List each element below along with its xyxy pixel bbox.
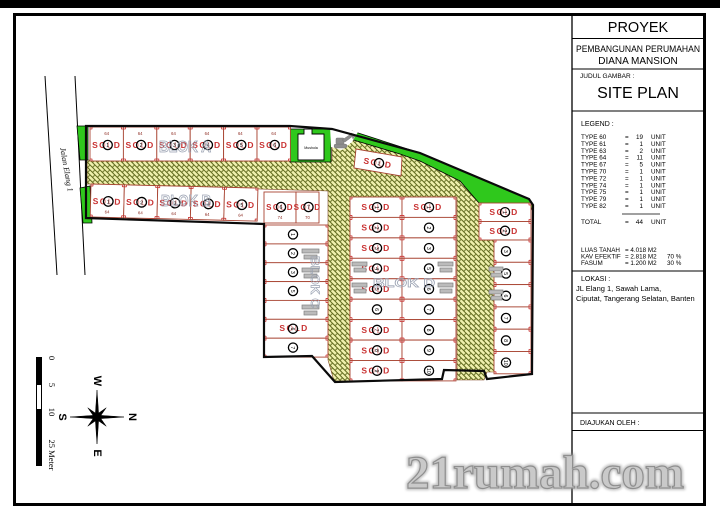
svg-text:BLOK C: BLOK C bbox=[308, 256, 322, 308]
svg-text:2: 2 bbox=[373, 226, 379, 229]
svg-text:= 1.200 M2: = 1.200 M2 bbox=[625, 260, 657, 267]
svg-text:LOKASI :: LOKASI : bbox=[581, 276, 610, 283]
svg-text:9: 9 bbox=[373, 369, 379, 372]
svg-text:5: 5 bbox=[240, 203, 243, 209]
svg-text:BLOK A: BLOK A bbox=[159, 139, 211, 156]
svg-text:=: = bbox=[625, 219, 629, 226]
svg-text:Ciputat, Tangerang Selatan, Ba: Ciputat, Tangerang Selatan, Banten bbox=[576, 294, 695, 303]
svg-text:10: 10 bbox=[502, 360, 508, 366]
svg-text:7: 7 bbox=[373, 329, 379, 332]
svg-text:PEMBANGUNAN PERUMAHAN: PEMBANGUNAN PERUMAHAN bbox=[576, 44, 700, 55]
svg-text:30 %: 30 % bbox=[667, 260, 682, 267]
svg-text:64: 64 bbox=[171, 131, 176, 136]
svg-text:1: 1 bbox=[639, 203, 643, 210]
svg-text:64: 64 bbox=[238, 213, 243, 218]
svg-text:3: 3 bbox=[502, 250, 508, 253]
svg-text:8: 8 bbox=[373, 349, 379, 352]
svg-text:1: 1 bbox=[373, 206, 379, 209]
svg-text:5: 5 bbox=[289, 290, 295, 293]
svg-text:TOTAL: TOTAL bbox=[581, 219, 602, 226]
svg-text:JL Elang 1, Sawah Lama,: JL Elang 1, Sawah Lama, bbox=[576, 284, 661, 293]
svg-text:UNIT: UNIT bbox=[651, 219, 666, 226]
svg-text:64: 64 bbox=[271, 131, 276, 136]
svg-text:5: 5 bbox=[425, 267, 431, 270]
svg-text:0: 0 bbox=[47, 356, 57, 360]
svg-text:21rumah.com: 21rumah.com bbox=[406, 447, 684, 499]
svg-text:6: 6 bbox=[273, 143, 276, 149]
svg-text:5: 5 bbox=[502, 272, 508, 275]
svg-text:PROYEK: PROYEK bbox=[608, 20, 669, 36]
svg-text:2: 2 bbox=[425, 226, 431, 229]
svg-text:6: 6 bbox=[502, 294, 508, 297]
svg-text:7: 7 bbox=[307, 205, 310, 211]
svg-text:64: 64 bbox=[205, 212, 210, 217]
svg-text:DIAJUKAN OLEH :: DIAJUKAN OLEH : bbox=[580, 420, 640, 427]
svg-text:6: 6 bbox=[289, 327, 295, 330]
svg-text:2: 2 bbox=[289, 252, 295, 255]
svg-text:3: 3 bbox=[425, 247, 431, 250]
svg-text:1: 1 bbox=[106, 143, 109, 149]
svg-text:7: 7 bbox=[289, 346, 295, 349]
svg-text:2: 2 bbox=[140, 200, 143, 206]
svg-text:=: = bbox=[625, 203, 629, 210]
svg-text:5: 5 bbox=[240, 143, 243, 149]
svg-text:3: 3 bbox=[289, 271, 295, 274]
svg-text:6: 6 bbox=[280, 205, 283, 211]
svg-text:64: 64 bbox=[171, 211, 176, 216]
svg-text:7: 7 bbox=[425, 308, 431, 311]
svg-text:5: 5 bbox=[47, 383, 57, 387]
svg-text:64: 64 bbox=[104, 131, 109, 136]
svg-text:Jalan Elang 1: Jalan Elang 1 bbox=[58, 147, 75, 193]
svg-text:64: 64 bbox=[238, 131, 243, 136]
svg-text:BLOK B: BLOK B bbox=[161, 193, 211, 210]
svg-text:44: 44 bbox=[636, 219, 644, 226]
svg-text:1: 1 bbox=[289, 233, 295, 236]
svg-text:1: 1 bbox=[501, 211, 507, 214]
svg-text:8: 8 bbox=[425, 329, 431, 332]
svg-text:8: 8 bbox=[502, 339, 508, 342]
svg-text:10: 10 bbox=[47, 408, 57, 417]
svg-text:UNIT: UNIT bbox=[651, 203, 666, 210]
svg-text:25 Meter: 25 Meter bbox=[47, 440, 57, 471]
svg-text:10: 10 bbox=[425, 368, 431, 374]
svg-text:N: N bbox=[126, 413, 138, 421]
svg-text:64: 64 bbox=[205, 131, 210, 136]
svg-text:2: 2 bbox=[140, 143, 143, 149]
svg-text:FASUM: FASUM bbox=[581, 260, 603, 267]
svg-text:JUDUL GAMBAR :: JUDUL GAMBAR : bbox=[580, 73, 634, 80]
svg-text:DIANA MANSION: DIANA MANSION bbox=[598, 56, 677, 67]
svg-text:1: 1 bbox=[107, 199, 110, 205]
svg-text:1: 1 bbox=[425, 206, 431, 209]
svg-text:74: 74 bbox=[278, 215, 283, 220]
svg-text:64: 64 bbox=[138, 131, 143, 136]
svg-text:64: 64 bbox=[138, 210, 143, 215]
svg-text:70: 70 bbox=[305, 215, 310, 220]
svg-text:9: 9 bbox=[425, 349, 431, 352]
svg-text:TYPE 82: TYPE 82 bbox=[581, 203, 607, 210]
svg-text:4: 4 bbox=[373, 267, 379, 270]
svg-text:SITE PLAN: SITE PLAN bbox=[597, 85, 679, 102]
svg-text:S: S bbox=[56, 413, 68, 420]
svg-text:W: W bbox=[91, 376, 103, 387]
svg-text:7: 7 bbox=[502, 317, 508, 320]
svg-text:Mushola: Mushola bbox=[304, 146, 318, 150]
svg-text:BLOK D: BLOK D bbox=[373, 276, 435, 290]
svg-text:64: 64 bbox=[105, 209, 110, 214]
svg-text:LEGEND :: LEGEND : bbox=[581, 121, 614, 128]
svg-text:6: 6 bbox=[373, 308, 379, 311]
svg-text:E: E bbox=[91, 449, 103, 456]
svg-text:2: 2 bbox=[501, 229, 507, 232]
svg-text:3: 3 bbox=[373, 247, 379, 250]
